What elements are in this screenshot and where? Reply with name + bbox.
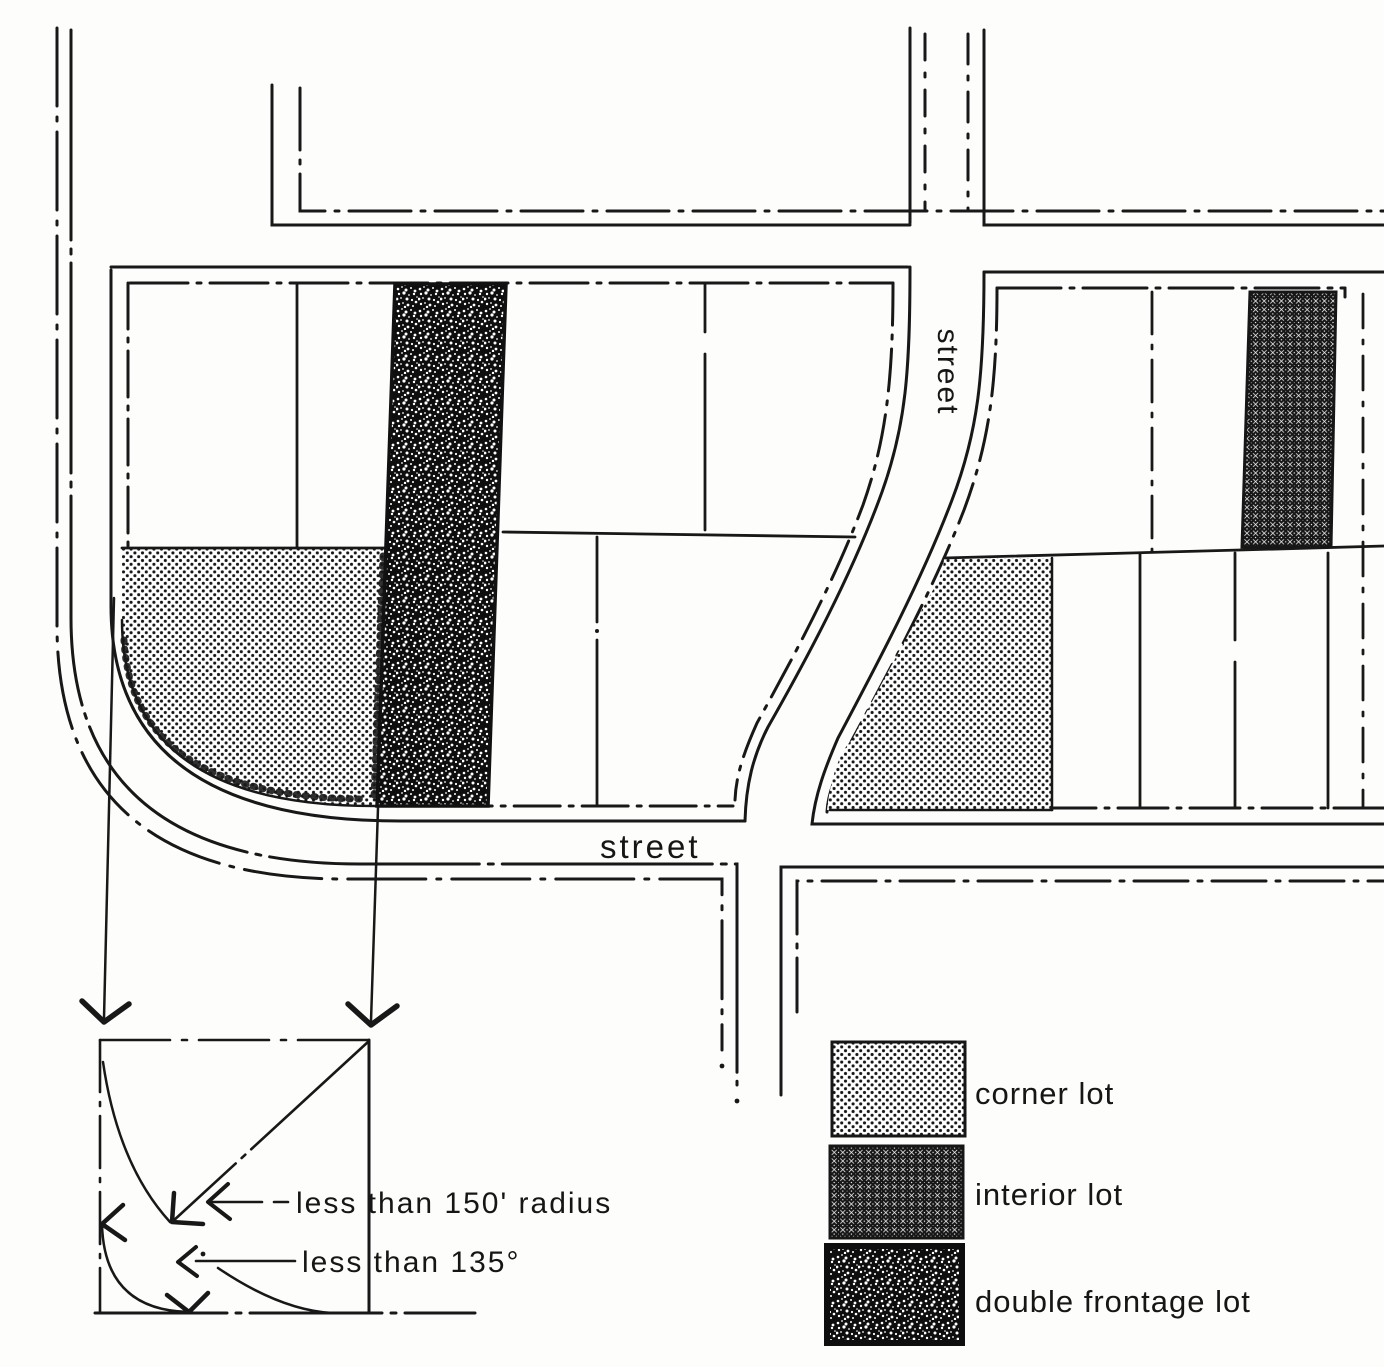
leader-line-right [371,808,378,1021]
legend-label-interior-lot: interior lot [975,1177,1123,1212]
annotation-radius-text: less than 150' radius [296,1187,612,1220]
annotation-angle-arrowhead [178,1247,197,1276]
street-label-horizontal: street [600,828,701,865]
interior-lot-region [1242,292,1336,547]
plat-diagram-page: corner lot interior lot double frontage … [0,0,1384,1367]
double-frontage-lot-region [377,284,506,806]
annotation-angle-text: less than 135° [302,1246,520,1279]
street-label-vertical: street [931,328,964,415]
legend-swatch-corner-lot [832,1042,965,1136]
legend: corner lot interior lot double frontage … [827,1042,1251,1343]
detail-arc-quarter-arrowhead-bottom [167,1293,208,1312]
top-street-north-inner-dashdot [300,88,1384,211]
top-street-north-edge-west [272,85,910,225]
corner-lot-region [122,548,388,806]
corner-lot-region-right [827,558,1052,810]
right-block [827,292,1384,810]
top-street-north-edge-east [984,30,1384,225]
south-stub-end-dot-2 [735,1099,740,1104]
annotation-angle-dot [201,1252,206,1257]
legend-swatch-interior-lot [830,1146,963,1238]
legend-label-double-frontage-lot: double frontage lot [975,1284,1251,1319]
left-block-mid-line-east [503,532,855,537]
bottom-street-south-inner-dashdot-right [797,881,1384,1012]
legend-swatch-double-frontage-lot [827,1246,962,1343]
detail-arc-large [103,1062,170,1222]
detail-arc-quarter-arrowhead-left [102,1205,125,1240]
south-stub-end-dot-1 [720,1064,725,1069]
plat-diagram-svg: corner lot interior lot double frontage … [0,0,1384,1367]
leader-line-left [104,598,114,1018]
left-block [122,284,855,806]
detail-arc-quarter [102,1224,189,1312]
legend-label-corner-lot: corner lot [975,1076,1114,1111]
left-block-lot-line-3-dot [595,629,599,633]
